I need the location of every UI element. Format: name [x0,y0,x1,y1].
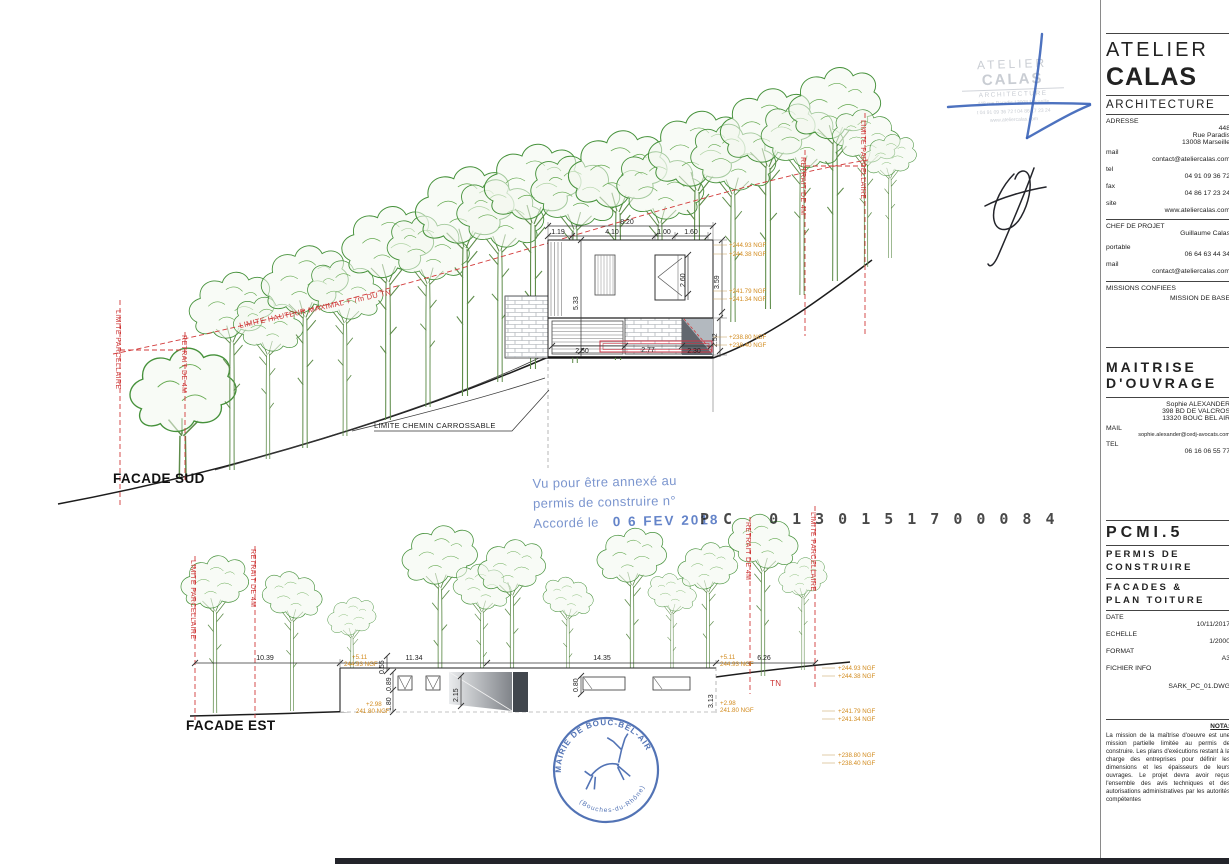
retrait-4m-label: RETRAIT DE 4M [249,549,256,607]
nota-text: La mission de la maîtrise d'oeuvre est u… [1106,732,1229,803]
title-block: ATELIER CALAS ARCHITECTURE ADRESSE 448 R… [1100,0,1229,864]
portable-label: portable [1106,244,1229,251]
divider [1106,95,1229,96]
dim-label: 1.19 [551,229,565,236]
level-label: +241.34 NGF [729,296,767,303]
date-label: DATE [1106,614,1229,621]
chef-projet-value: Guillaume Calas [1106,230,1229,237]
mairie-stamp-bottom-text: (Bouches-du-Rhône) [577,783,651,822]
dim-label: 2.50 [575,348,589,355]
dim-label: 11.34 [406,655,423,662]
moa-address: 398 BD DE VALCROS [1106,408,1229,415]
window-band [653,677,690,690]
divider [1106,545,1229,546]
retrait-4m-label: RETRAIT DE 4M [799,157,806,215]
piece-code: PCMI.5 [1106,524,1229,542]
fichier-label: FICHIER INFO [1106,665,1229,672]
permis-line1: PERMIS DE [1106,549,1229,562]
entry-door [513,672,528,712]
site-label: site [1106,200,1229,207]
level-label: +2.98 [366,701,382,708]
tel-label: tel [1106,166,1229,173]
dim-label: 2.77 [641,347,655,354]
divider [1106,347,1229,348]
adresse-value: 13008 Marseille [1106,139,1229,146]
permis-line2: CONSTRUIRE [1106,562,1229,575]
firm-logo-line3: ARCHITECTURE [1106,99,1229,111]
level-label: +241.34 NGF [838,716,876,723]
pine-trees-sud [130,68,916,479]
terrain-upper-line [215,355,545,470]
dim-label: 5.33 [573,296,580,310]
svg-text:MAIRIE DE BOUC-BEL-AIR: MAIRIE DE BOUC-BEL-AIR [544,707,654,775]
level-label: +2.98 [720,700,736,707]
format-value: A3 [1106,655,1229,662]
dim-label: 3.13 [708,694,715,708]
facade-est: LIMITE PARCELLAIRE RETRAIT DE 4M RETRAIT… [181,506,876,767]
divider [1106,578,1229,579]
echelle-value: 1/2000 [1106,638,1229,645]
date-value: 10/11/2017 [1106,621,1229,628]
chemin-label: LIMITE CHEMIN CARROSSABLE [374,421,496,430]
level-label: +241.79 NGF [838,708,876,715]
dim-label: 2.30 [687,348,701,355]
divider [1106,610,1229,611]
scanned-plan-page: { "titleblock": { "logo_line1": "ATELIER… [0,0,1229,864]
divider [1106,219,1229,220]
level-label: 244.93 NGF [344,661,378,668]
level-label: 241.80 NGF [720,707,754,714]
dim-label: 3.59 [714,275,721,289]
mairie-stamp-top-text: MAIRIE DE BOUC-BEL-AIR [544,707,654,775]
level-label: +5.11 [720,654,736,661]
adresse-value: 448 [1106,125,1229,132]
window-band [583,677,625,690]
piece-subject: FACADES & PLAN TOITURE [1106,582,1229,608]
dim-label: 0.89 [386,677,393,691]
divider [1106,719,1229,720]
facades-line2: PLAN TOITURE [1106,595,1229,608]
facade-sud-title: FACADE SUD [113,471,205,486]
level-label: +244.93 NGF [729,242,767,249]
limite-parcellaire-label: LIMITE PARCELLAIRE [189,560,196,639]
level-label: +244.93 NGF [838,665,876,672]
dim-label: 1.60 [684,229,698,236]
mail-label: mail [1106,261,1229,268]
level-label: +238.80 NGF [729,334,767,341]
dim-label: 1.00 [657,229,671,236]
level-label: +244.38 NGF [729,251,767,258]
house-sud [505,240,713,358]
approval-line: Accordé le0 6 FEV 2018 [533,510,719,535]
house-est [340,660,716,714]
missions-label: MISSIONS CONFIEES [1106,285,1229,292]
dim-label: 14.35 [593,655,611,662]
format-label: FORMAT [1106,648,1229,655]
mail-value: contact@ateliercalas.com [1106,156,1229,163]
nota-label: NOTA: [1106,723,1229,730]
dim-label: 4.10 [605,229,619,236]
limite-parcellaire-label: LIMITE PARCELLAIRE [859,120,866,199]
window [426,676,440,690]
deer-icon [575,733,639,792]
divider [1106,397,1229,398]
retrait-4m-label: RETRAIT DE 4M [180,335,187,393]
fichier-value: SARK_PC_01.DWG [1106,683,1229,690]
limite-parcellaire-label: LIMITE PARCELLAIRE [114,310,121,389]
divider [1106,33,1229,34]
echelle-label: ECHELLE [1106,631,1229,638]
level-label: +238.40 NGF [729,342,767,349]
chef-projet-label: CHEF DE PROJET [1106,223,1229,230]
dim-label: 8.20 [620,219,634,226]
dim-label: 0.55 [379,660,386,674]
dim-label: 6.26 [757,655,771,662]
tel-value: 04 91 09 36 72 [1106,173,1229,180]
ngf-levels-sud: +244.93 NGF +244.38 NGF +241.79 NGF +241… [713,242,767,349]
approval-stamp: Vu pour être annexé au permis de constru… [532,470,719,535]
dim-label: 2.15 [453,688,460,702]
fax-label: fax [1106,183,1229,190]
blue-signature [948,34,1090,138]
firm-logo-line1: ATELIER [1106,39,1229,62]
facades-line1: FACADES & [1106,582,1229,595]
level-label: 241.80 NGF [356,708,390,715]
adresse-label: ADRESSE [1106,118,1229,125]
level-label: +5.11 [352,654,368,661]
facade-sud: LIMITE PARCELLAIRE RETRAIT DE 4M RETRAIT… [58,68,916,506]
tn-label: TN [770,679,781,688]
mairie-stamp: MAIRIE DE BOUC-BEL-AIR (Bouches-du-Rhône… [543,707,669,833]
level-label: +238.80 NGF [838,752,876,759]
mail-label: mail [1106,149,1229,156]
dim-label: 10.39 [256,655,274,662]
missions-value: MISSION DE BASE [1106,295,1229,302]
approval-accorde-label: Accordé le [533,515,599,531]
level-label: +244.38 NGF [838,673,876,680]
svg-text:(Bouches-du-Rhône): (Bouches-du-Rhône) [577,783,651,822]
divider [1106,281,1229,282]
level-label: 244.93 NGF [720,661,754,668]
moa-mail-label: MAIL [1106,425,1229,432]
dim-label: 2.60 [680,273,687,287]
dim-label: 0.80 [573,678,580,692]
adresse-value: Rue Paradis [1106,132,1229,139]
permis-title: PERMIS DE CONSTRUIRE [1106,549,1229,575]
retrait-4m-label: RETRAIT DE 4M [744,522,751,580]
divider [1106,114,1229,115]
moa-line1: MAITRISE [1106,359,1229,375]
site-value: www.ateliercalas.com [1106,207,1229,214]
firm-logo-line2: CALAS [1106,63,1229,92]
level-label: +238.40 NGF [838,760,876,767]
level-label: +241.79 NGF [729,288,767,295]
facade-est-title: FACADE EST [186,718,276,733]
maitrise-ouvrage-title: MAITRISE D'OUVRAGE [1106,359,1229,391]
window [398,676,412,690]
portable-value: 06 64 63 44 34 [1106,251,1229,258]
moa-address: 13320 BOUC BEL AIR [1106,415,1229,422]
moa-mail-value: sophie.alexander@cedj-avocats.com [1106,432,1229,438]
divider [1106,520,1229,521]
moa-line2: D'OUVRAGE [1106,375,1229,391]
moa-name: Sophie ALEXANDER [1106,401,1229,408]
elevation-drawing: LIMITE PARCELLAIRE RETRAIT DE 4M RETRAIT… [0,0,1229,864]
mail-value: contact@ateliercalas.com [1106,268,1229,275]
moa-tel-label: TEL [1106,441,1229,448]
permit-number: PC 0130151700084 [700,510,1069,528]
scan-edge-strip [335,858,1229,864]
architect-signature [985,168,1046,266]
moa-tel-value: 06 16 06 55 77 [1106,448,1229,455]
fax-value: 04 86 17 23 24 [1106,190,1229,197]
